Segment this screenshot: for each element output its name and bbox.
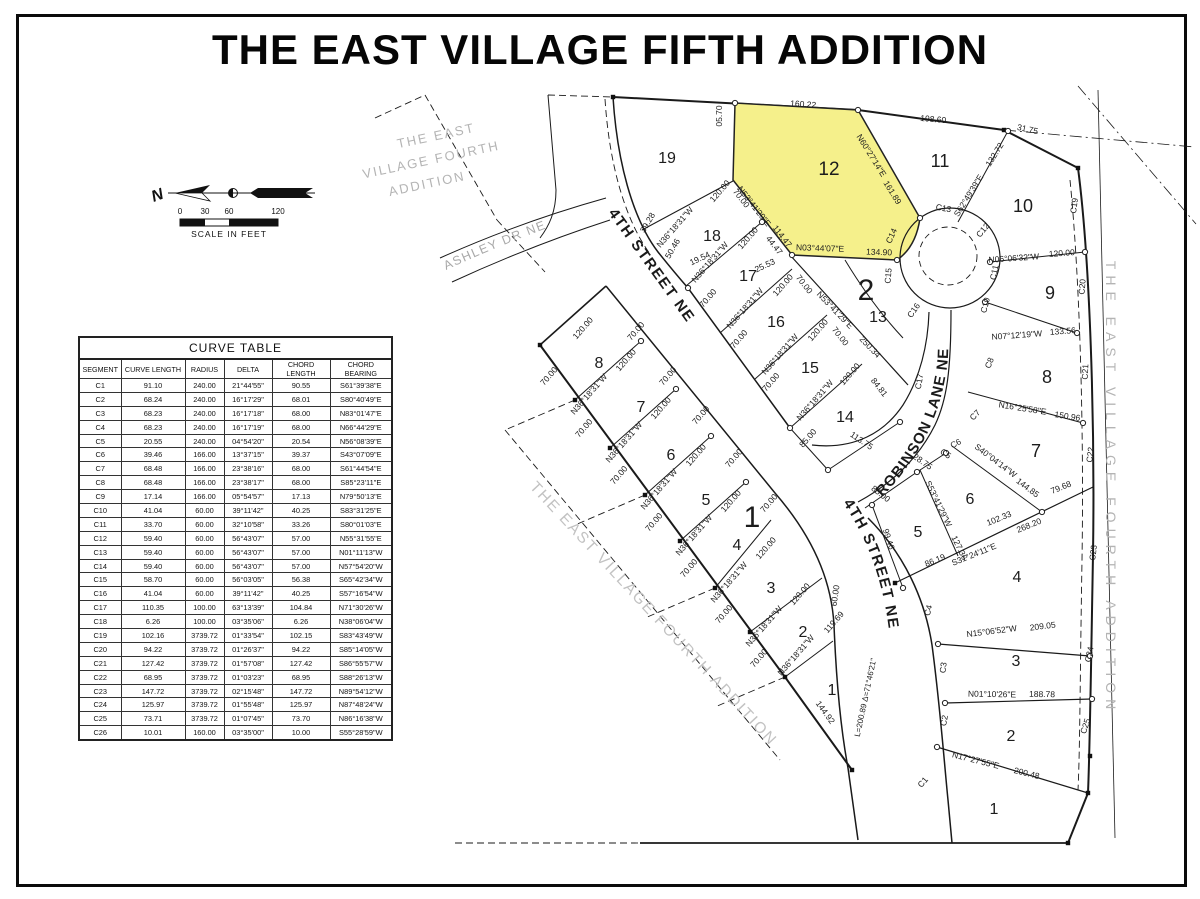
table-cell: 240.00 <box>185 379 224 393</box>
map-label: 12 <box>818 159 839 180</box>
curve-table-title: CURVE TABLE <box>79 337 392 359</box>
map-label: C21 <box>1080 364 1091 380</box>
map-label: S40°04'14"W <box>973 442 1019 480</box>
boundary-corner-dot <box>850 768 854 772</box>
cul-de-sac-inner-dashed <box>919 227 977 285</box>
map-line <box>375 95 425 118</box>
table-row: C1133.7060.0032°10'58"33.26S80°01'03"E <box>79 517 392 531</box>
table-cell: 33.26 <box>272 517 330 531</box>
curve-table: CURVE TABLE SEGMENTCURVE LENGTHRADIUSDEL… <box>78 336 391 741</box>
table-cell: 33.70 <box>121 517 185 531</box>
map-label: C4 <box>922 603 935 616</box>
table-cell: C25 <box>79 712 121 726</box>
map-label: 7 <box>637 399 646 416</box>
table-cell: 16°17'29" <box>224 392 272 406</box>
table-row: C639.46166.0013°37'15"39.37S43°07'09"E <box>79 448 392 462</box>
table-cell: 125.97 <box>121 698 185 712</box>
table-cell: 240.00 <box>185 392 224 406</box>
table-cell: S61°39'38"E <box>330 379 392 393</box>
lot-corner-dot <box>732 100 737 105</box>
street-name-label: 4TH STREET NE <box>840 496 902 631</box>
table-row: C1259.4060.0056°43'07"57.00N55°31'55"E <box>79 531 392 545</box>
map-line <box>505 400 575 430</box>
table-cell: 3739.72 <box>185 712 224 726</box>
map-label: 70.00 <box>748 647 770 670</box>
lot-corner-dot <box>787 425 792 430</box>
lot-corner-dot <box>1080 420 1085 425</box>
map-label: 84.81 <box>869 376 890 399</box>
map-label: 19 <box>658 150 676 167</box>
map-label: 11 <box>931 151 950 171</box>
table-cell: 60.00 <box>185 559 224 573</box>
column-header: DELTA <box>224 359 272 379</box>
table-cell: 68.00 <box>272 420 330 434</box>
table-cell: 56°43'07" <box>224 559 272 573</box>
table-cell: N79°50'13"E <box>330 490 392 504</box>
table-cell: S61°44'54"E <box>330 462 392 476</box>
table-cell: 57.00 <box>272 545 330 559</box>
map-label: 120.00 <box>787 581 812 607</box>
table-cell: 6.26 <box>272 615 330 629</box>
table-cell: 68.00 <box>272 476 330 490</box>
map-label: C17 <box>913 373 926 390</box>
map-label: 132.72 <box>983 141 1005 169</box>
map-label: 70.00 <box>678 557 700 580</box>
boundary-corner-dot <box>1066 841 1070 845</box>
boundary-corner-dot <box>1076 166 1080 170</box>
scale-bar-seg1 <box>180 219 205 226</box>
map-label: 160.22 <box>790 98 817 110</box>
table-row: C468.23240.0016°17'19"68.00N66°44'29"E <box>79 420 392 434</box>
lot-corner-dot <box>942 700 947 705</box>
map-label: 7 <box>1031 441 1041 461</box>
map-label: 102.33 <box>985 509 1013 528</box>
map-label: 120.00 <box>735 225 760 251</box>
table-cell: 56°43'07" <box>224 531 272 545</box>
map-label: 4 <box>733 537 742 554</box>
table-cell: 68.24 <box>121 392 185 406</box>
table-cell: 240.00 <box>185 420 224 434</box>
boundary-corner-dot <box>1086 791 1090 795</box>
table-cell: C10 <box>79 504 121 518</box>
lot-corner-dot <box>894 257 899 262</box>
table-row: C2573.713739.7201°07'45"73.70N86°16'38"W <box>79 712 392 726</box>
table-row: C24125.973739.7201°55'48"125.97N87°48'24… <box>79 698 392 712</box>
table-cell: 127.42 <box>272 656 330 670</box>
table-cell: 39.37 <box>272 448 330 462</box>
lot-corner-dot <box>673 386 678 391</box>
map-label: 70.00 <box>723 447 745 470</box>
table-cell: 10.01 <box>121 726 185 740</box>
table-cell: 01°33'54" <box>224 629 272 643</box>
column-header: CHORD LENGTH <box>272 359 330 379</box>
scale-tick-label: 30 <box>201 207 210 216</box>
column-header: CHORD BEARING <box>330 359 392 379</box>
scale-bar-seg2 <box>229 219 278 226</box>
lot-corner-dot <box>914 469 919 474</box>
map-label: C7 <box>967 407 982 422</box>
map-label: 8 <box>595 355 604 372</box>
map-label: N36°18'31"W <box>775 633 816 678</box>
table-row: C2268.953739.7201°03'23"68.95S88°26'13"W <box>79 670 392 684</box>
map-label: 70.00 <box>794 273 815 296</box>
map-label: N36°18'31"W <box>794 378 835 423</box>
table-cell: 23°38'16" <box>224 462 272 476</box>
lot-corner-dot <box>1039 509 1044 514</box>
table-cell: 57.00 <box>272 559 330 573</box>
table-cell: 125.97 <box>272 698 330 712</box>
table-cell: S83°31'25"E <box>330 504 392 518</box>
map-label: 31.75 <box>1016 122 1039 136</box>
map-label: 99.46 <box>881 527 897 551</box>
table-cell: S86°55'57"W <box>330 656 392 670</box>
map-label: THE EAST VILLAGE FOURTH ADDITION <box>1103 261 1119 715</box>
map-label: 6 <box>966 491 975 508</box>
table-cell: 100.00 <box>185 615 224 629</box>
curve-table-body: C191.10240.0021°44'55"90.55S61°39'38"EC2… <box>79 379 392 741</box>
table-cell: S80°40'49"E <box>330 392 392 406</box>
table-row: C1641.0460.0039°11'42"40.25S57°16'54"W <box>79 587 392 601</box>
map-label: C13 <box>935 202 952 215</box>
map-label: C15 <box>882 267 893 284</box>
map-line <box>945 699 1092 703</box>
table-cell: 01°26'37" <box>224 642 272 656</box>
table-cell: C26 <box>79 726 121 740</box>
table-cell: 104.84 <box>272 601 330 615</box>
map-label: 28.75 <box>911 451 934 472</box>
table-cell: 57.00 <box>272 531 330 545</box>
table-row: C2610.01160.0003°35'00"10.00S55°28'59"W <box>79 726 392 740</box>
table-cell: C18 <box>79 615 121 629</box>
table-cell: N57°54'20"W <box>330 559 392 573</box>
map-label: 05.70 <box>714 105 724 127</box>
map-label: 70.00 <box>643 511 665 534</box>
table-cell: 3739.72 <box>185 684 224 698</box>
map-label: 3 <box>767 580 776 597</box>
table-row: C868.48166.0023°38'17"68.00S85°23'11"E <box>79 476 392 490</box>
table-cell: N87°48'24"W <box>330 698 392 712</box>
table-row: C1558.7060.0056°03'05"56.38S65°42'34"W <box>79 573 392 587</box>
table-cell: C22 <box>79 670 121 684</box>
table-cell: 94.22 <box>121 642 185 656</box>
map-label: N01°10'26"E <box>968 689 1017 700</box>
map-label: 9 <box>1045 283 1055 303</box>
table-cell: S57°16'54"W <box>330 587 392 601</box>
map-label: 70.00 <box>608 464 630 487</box>
lot-corner-dot <box>708 433 713 438</box>
map-label: C11 <box>988 264 1001 281</box>
map-label: 120.00 <box>683 442 708 468</box>
north-arrow-head-lower <box>175 193 210 201</box>
map-label: 133.56 <box>1049 325 1076 337</box>
table-cell: 58.70 <box>121 573 185 587</box>
table-cell: C17 <box>79 601 121 615</box>
table-row: C186.26100.0003°35'06"6.26N38°06'04"W <box>79 615 392 629</box>
map-label: 120.00 <box>707 178 732 204</box>
table-cell: C14 <box>79 559 121 573</box>
map-label: S53°41'29"W <box>923 479 954 528</box>
table-cell: S88°26'13"W <box>330 670 392 684</box>
table-row: C21127.423739.7201°57'08"127.42S86°55'57… <box>79 656 392 670</box>
map-label: C10 <box>978 296 992 314</box>
lot-corner-dot <box>1005 128 1010 133</box>
map-label: 2 <box>1007 728 1016 745</box>
map-label: 10 <box>1013 196 1033 216</box>
map-label: 39.28 <box>638 211 657 235</box>
lot-corner-dot <box>638 338 643 343</box>
table-cell: 68.95 <box>121 670 185 684</box>
map-label: 120.00 <box>805 317 830 343</box>
map-line <box>812 312 929 446</box>
table-row: C1359.4060.0056°43'07"57.00N01°11'13"W <box>79 545 392 559</box>
map-label: 200.48 <box>1013 765 1041 781</box>
map-label: 120.00 <box>837 361 862 387</box>
lot-corner-dot <box>789 252 794 257</box>
map-label: 70.00 <box>657 365 679 388</box>
map-line <box>540 95 556 238</box>
scale-tick-label: 120 <box>271 207 285 216</box>
lot-corner-dot <box>1082 249 1087 254</box>
map-label: C2 <box>938 714 950 727</box>
map-label: 17 <box>739 268 757 285</box>
table-cell: 40.25 <box>272 504 330 518</box>
table-cell: 59.40 <box>121 559 185 573</box>
table-cell: 01°03'23" <box>224 670 272 684</box>
lot-corner-dot <box>743 479 748 484</box>
map-label: 120.00 <box>718 488 743 514</box>
table-cell: 100.00 <box>185 601 224 615</box>
boundary-corner-dot <box>538 343 542 347</box>
table-cell: C23 <box>79 684 121 698</box>
table-cell: S83°43'49"W <box>330 629 392 643</box>
table-cell: 3739.72 <box>185 642 224 656</box>
table-cell: 60.00 <box>185 517 224 531</box>
map-label: 144.85 <box>1014 476 1041 500</box>
table-row: C1041.0460.0039°11'42"40.25S83°31'25"E <box>79 504 392 518</box>
table-cell: 05°54'57" <box>224 490 272 504</box>
map-line <box>895 487 1093 583</box>
table-row: C17110.35100.0063°13'39"104.84N71°30'26"… <box>79 601 392 615</box>
lot-corner-dot <box>1089 696 1094 701</box>
table-cell: C24 <box>79 698 121 712</box>
map-label: 120.00 <box>570 315 595 341</box>
table-cell: C8 <box>79 476 121 490</box>
map-label: 209.05 <box>1029 619 1056 632</box>
table-cell: C16 <box>79 587 121 601</box>
map-label: 18 <box>703 228 721 245</box>
table-row: C520.55240.0004°54'20"20.54N56°08'39"E <box>79 434 392 448</box>
table-cell: C2 <box>79 392 121 406</box>
table-cell: 166.00 <box>185 462 224 476</box>
table-cell: 110.35 <box>121 601 185 615</box>
table-cell: N83°01'47"E <box>330 406 392 420</box>
map-label: N06°06'32"W <box>988 251 1039 265</box>
table-cell: 60.00 <box>185 545 224 559</box>
table-cell: S43°07'09"E <box>330 448 392 462</box>
map-label: 70.00 <box>690 404 712 427</box>
table-cell: 68.95 <box>272 670 330 684</box>
map-label: 2 <box>799 624 808 641</box>
table-cell: C5 <box>79 434 121 448</box>
map-label: C1 <box>915 774 930 789</box>
table-cell: 32°10'58" <box>224 517 272 531</box>
map-label: 188.78 <box>1029 689 1055 699</box>
map-label: 120.00 <box>1048 247 1075 259</box>
map-label: 1 <box>828 682 837 699</box>
map-label: C6 <box>948 436 963 450</box>
table-cell: 20.54 <box>272 434 330 448</box>
table-cell: 147.72 <box>272 684 330 698</box>
table-row: C23147.723739.7202°15'48"147.72N89°54'12… <box>79 684 392 698</box>
table-cell: C1 <box>79 379 121 393</box>
lot-corner-dot <box>685 285 690 290</box>
table-cell: 01°07'45" <box>224 712 272 726</box>
map-label: N36°18'31"W <box>724 286 765 331</box>
table-cell: N86°16'38"W <box>330 712 392 726</box>
table-row: C268.24240.0016°17'29"68.01S80°40'49"E <box>79 392 392 406</box>
map-label: 150.96 <box>1054 409 1082 423</box>
north-arrow-feather <box>250 188 313 198</box>
table-cell: 160.00 <box>185 726 224 740</box>
table-cell: 3739.72 <box>185 670 224 684</box>
map-label: N36°18'31"W <box>759 332 800 377</box>
map-label: 3 <box>1012 653 1021 670</box>
map-label: 86.19 <box>923 551 947 568</box>
table-cell: S85°14'05"W <box>330 642 392 656</box>
table-cell: 40.25 <box>272 587 330 601</box>
table-cell: 68.48 <box>121 476 185 490</box>
map-label: N36°18'31"W <box>743 604 784 649</box>
table-row: C768.48166.0023°38'16"68.00S61°44'54"E <box>79 462 392 476</box>
table-cell: C9 <box>79 490 121 504</box>
map-label: 60.00 <box>829 584 842 607</box>
map-label: C5 <box>938 446 953 461</box>
map-label: N15°06'52"W <box>966 623 1017 639</box>
lot-corner-dot <box>897 419 902 424</box>
map-label: C20 <box>1076 278 1087 295</box>
lot-corner-dot <box>869 502 874 507</box>
map-label: 6 <box>667 447 676 464</box>
table-cell: C13 <box>79 545 121 559</box>
table-row: C1459.4060.0056°43'07"57.00N57°54'20"W <box>79 559 392 573</box>
map-label: N16°25'58"E <box>998 399 1048 416</box>
map-label: C12 <box>974 221 992 240</box>
map-line <box>1068 168 1093 843</box>
table-cell: C6 <box>79 448 121 462</box>
table-cell: 91.10 <box>121 379 185 393</box>
map-label: 120.00 <box>613 347 638 373</box>
table-cell: S55°28'59"W <box>330 726 392 740</box>
table-cell: 127.42 <box>121 656 185 670</box>
lot-corner-dot <box>917 215 922 220</box>
column-header: SEGMENT <box>79 359 121 379</box>
table-cell: 21°44'55" <box>224 379 272 393</box>
table-cell: 60.00 <box>185 587 224 601</box>
table-cell: S85°23'11"E <box>330 476 392 490</box>
column-header: CURVE LENGTH <box>121 359 185 379</box>
table-row: C917.14166.0005°54'57"17.13N79°50'13"E <box>79 490 392 504</box>
table-cell: 23°38'17" <box>224 476 272 490</box>
map-label: C16 <box>905 301 922 320</box>
table-cell: 39°11'42" <box>224 504 272 518</box>
map-label: 5 <box>702 492 711 509</box>
table-cell: 56°03'05" <box>224 573 272 587</box>
table-cell: 02°15'48" <box>224 684 272 698</box>
lot-corner-dot <box>935 641 940 646</box>
table-cell: 03°35'06" <box>224 615 272 629</box>
map-label: 70.00 <box>573 417 595 440</box>
table-cell: 240.00 <box>185 434 224 448</box>
table-row: C368.23240.0016°17'18"68.00N83°01'47"E <box>79 406 392 420</box>
map-label: 70.00 <box>697 287 719 310</box>
table-cell: 60.00 <box>185 504 224 518</box>
plat-sheet: THE EAST VILLAGE FIFTH ADDITION 4TH STRE… <box>0 0 1200 899</box>
table-cell: 94.22 <box>272 642 330 656</box>
table-cell: 73.70 <box>272 712 330 726</box>
table-cell: 56.38 <box>272 573 330 587</box>
table-cell: 166.00 <box>185 476 224 490</box>
map-label: 2 <box>858 274 875 307</box>
table-cell: 56°43'07" <box>224 545 272 559</box>
table-cell: 04°54'20" <box>224 434 272 448</box>
map-line <box>1070 180 1083 790</box>
table-cell: 01°57'08" <box>224 656 272 670</box>
map-label: 1 <box>990 801 999 818</box>
lot-corner-dot <box>900 585 905 590</box>
table-cell: 68.48 <box>121 462 185 476</box>
map-label: 113.75 <box>848 429 875 452</box>
table-cell: 10.00 <box>272 726 330 740</box>
table-cell: N38°06'04"W <box>330 615 392 629</box>
table-cell: 3739.72 <box>185 698 224 712</box>
table-row: C2094.223739.7201°26'37"94.22S85°14'05"W <box>79 642 392 656</box>
table-cell: C21 <box>79 656 121 670</box>
map-line <box>606 286 858 840</box>
map-label: C23 <box>1087 544 1099 561</box>
table-cell: S65°42'34"W <box>330 573 392 587</box>
table-cell: 17.13 <box>272 490 330 504</box>
map-label: C22 <box>1084 446 1096 463</box>
table-cell: 41.04 <box>121 587 185 601</box>
map-label: 134.90 <box>866 247 893 258</box>
map-line <box>1078 86 1196 224</box>
table-cell: 68.00 <box>272 462 330 476</box>
table-cell: N66°44'29"E <box>330 420 392 434</box>
map-label: 4 <box>1013 569 1022 586</box>
table-row: C191.10240.0021°44'55"90.55S61°39'38"E <box>79 379 392 393</box>
table-cell: 20.55 <box>121 434 185 448</box>
curve-table-header: SEGMENTCURVE LENGTHRADIUSDELTACHORD LENG… <box>79 359 392 379</box>
table-cell: 68.23 <box>121 406 185 420</box>
table-cell: 63°13'39" <box>224 601 272 615</box>
map-label: C8 <box>983 356 996 370</box>
table-cell: C11 <box>79 517 121 531</box>
table-cell: C3 <box>79 406 121 420</box>
table-cell: N01°11'13"W <box>330 545 392 559</box>
table-cell: 41.04 <box>121 504 185 518</box>
scale-tick-label: 0 <box>178 207 183 216</box>
table-cell: 3739.72 <box>185 656 224 670</box>
map-label: C19 <box>1068 197 1080 214</box>
map-label: 13 <box>869 309 887 326</box>
table-cell: C7 <box>79 462 121 476</box>
table-cell: C12 <box>79 531 121 545</box>
map-label: 14 <box>836 409 854 426</box>
table-cell: 6.26 <box>121 615 185 629</box>
table-cell: 166.00 <box>185 490 224 504</box>
street-name-label: ASHLEY DR NE <box>441 218 548 273</box>
map-label: 8 <box>1042 367 1052 387</box>
